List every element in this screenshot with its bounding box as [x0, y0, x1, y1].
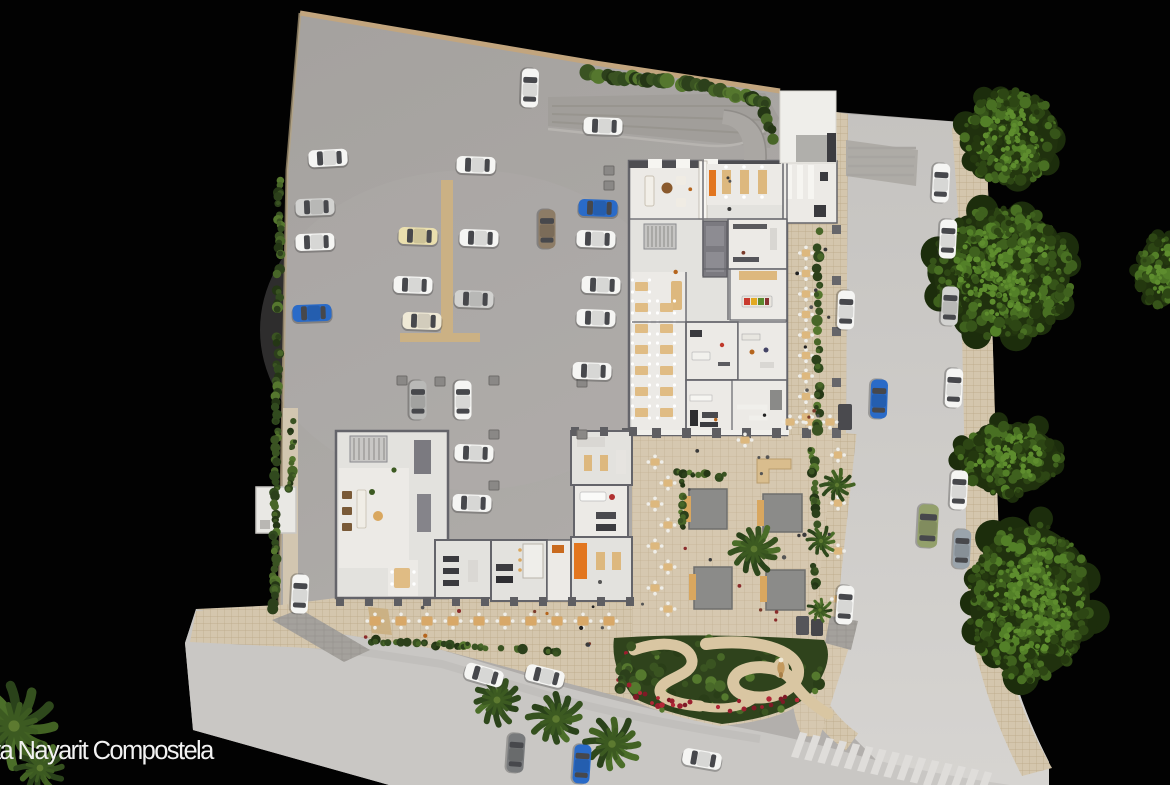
- svg-text:ta Nayarit Compostela: ta Nayarit Compostela: [0, 737, 215, 765]
